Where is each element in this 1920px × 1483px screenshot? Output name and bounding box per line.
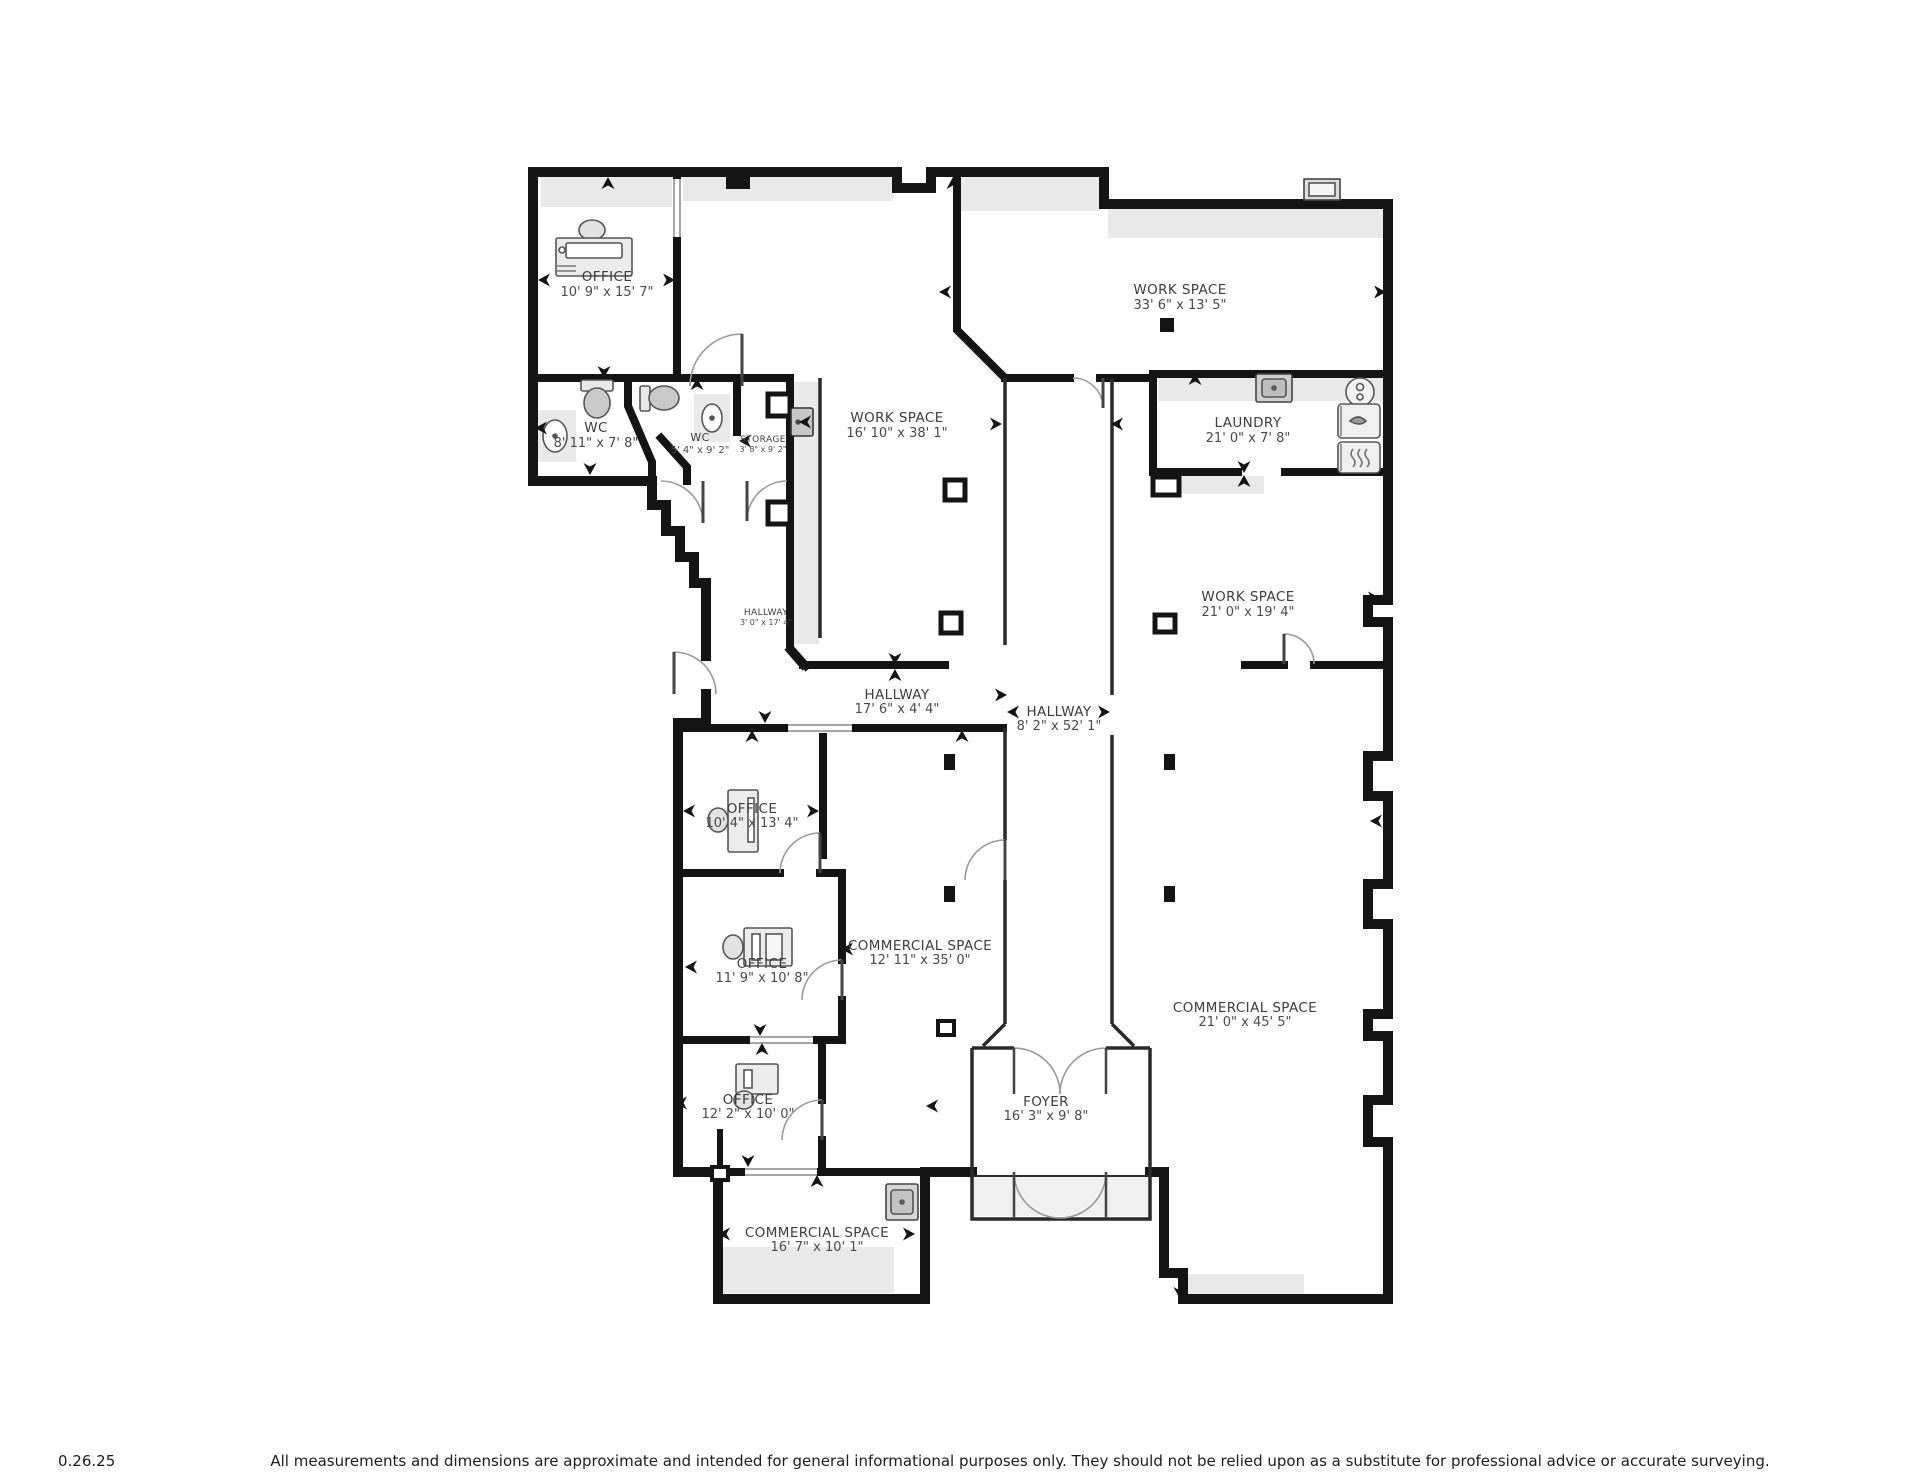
room-dims: 5' 4" x 9' 2" bbox=[671, 445, 730, 456]
column bbox=[1164, 754, 1175, 770]
arrow-icon bbox=[683, 805, 695, 818]
floor-plan-drawing: OFFICE 10' 9" x 15' 7" WORK SPACE 33' 6"… bbox=[0, 0, 1920, 1483]
exterior-wall bbox=[533, 481, 706, 656]
room-label-commercial-mid: COMMERCIAL SPACE 12' 11" x 35' 0" bbox=[848, 938, 992, 968]
room-label-work-space-top: WORK SPACE 33' 6" x 13' 5" bbox=[1133, 282, 1226, 313]
sink-icon bbox=[886, 1184, 918, 1220]
room-name: STORAGE bbox=[740, 435, 786, 445]
room-name: WC bbox=[690, 431, 709, 444]
arrow-icon bbox=[939, 286, 951, 299]
walls-thin bbox=[820, 378, 1150, 1219]
arrow-icon bbox=[1098, 706, 1110, 719]
room-dims: 8' 2" x 52' 1" bbox=[1017, 719, 1102, 734]
room-name: LAUNDRY bbox=[1214, 415, 1281, 431]
column bbox=[1155, 615, 1175, 632]
window bbox=[750, 1034, 813, 1045]
wall bbox=[790, 650, 945, 665]
arrow-icon bbox=[926, 1100, 938, 1113]
room-name: WORK SPACE bbox=[1201, 589, 1294, 605]
room-name: FOYER bbox=[1023, 1094, 1069, 1110]
arrow-icon bbox=[584, 463, 597, 475]
room-dims: 16' 7" x 10' 1" bbox=[771, 1240, 864, 1255]
arrow-icon bbox=[903, 1228, 915, 1241]
arrow-icon bbox=[990, 418, 1002, 431]
wall-pier bbox=[726, 172, 750, 189]
window-strip bbox=[1108, 209, 1384, 238]
room-label-commercial-right: COMMERCIAL SPACE 21' 0" x 45' 5" bbox=[1173, 1000, 1317, 1030]
arrow-icon bbox=[1370, 815, 1382, 828]
room-dims: 21' 0" x 7' 8" bbox=[1206, 431, 1291, 446]
column bbox=[712, 1167, 728, 1180]
arrow-icon bbox=[995, 689, 1007, 702]
window bbox=[672, 179, 682, 237]
arrow-icon bbox=[807, 805, 819, 818]
laundry-sink-icon bbox=[1256, 374, 1292, 402]
room-dims: 33' 6" x 13' 5" bbox=[1134, 298, 1227, 313]
room-dims: 17' 6" x 4' 4" bbox=[855, 702, 940, 717]
door bbox=[1284, 634, 1314, 664]
room-name: WORK SPACE bbox=[1133, 282, 1226, 298]
room-dims: 16' 3" x 9' 8" bbox=[1004, 1109, 1089, 1124]
toilet-icon bbox=[640, 386, 679, 411]
column bbox=[1160, 318, 1174, 332]
window bbox=[745, 1166, 817, 1177]
door bbox=[780, 833, 820, 873]
room-label-hallway-small: HALLWAY 3' 0" x 17' 4" bbox=[740, 608, 792, 627]
window-strip bbox=[961, 177, 1100, 211]
room-name: OFFICE bbox=[727, 801, 778, 817]
column bbox=[941, 613, 961, 633]
storefront-strip bbox=[1186, 1274, 1304, 1295]
room-label-office-2: OFFICE 11' 9" x 10' 8" bbox=[716, 956, 809, 986]
room-dims: 3' 0" x 17' 4" bbox=[740, 618, 792, 627]
arrow-icon bbox=[742, 1155, 755, 1167]
room-labels: OFFICE 10' 9" x 15' 7" WORK SPACE 33' 6"… bbox=[554, 269, 1317, 1255]
room-dims: 10' 4" x 13' 4" bbox=[706, 816, 799, 831]
room-name: HALLWAY bbox=[864, 687, 929, 703]
room-label-hallway-long: HALLWAY 8' 2" x 52' 1" bbox=[1017, 704, 1102, 734]
room-label-storage: STORAGE 3' 8" x 9' 2" bbox=[739, 435, 786, 454]
double-door bbox=[1014, 1048, 1106, 1094]
room-name: OFFICE bbox=[737, 956, 788, 972]
boiler-icon bbox=[1346, 378, 1374, 406]
window bbox=[788, 722, 852, 733]
room-label-work-space-mid: WORK SPACE 16' 10" x 38' 1" bbox=[846, 410, 947, 441]
desk-icon bbox=[556, 220, 632, 276]
room-dims: 8' 11" x 7' 8" bbox=[554, 436, 639, 451]
room-dims: 11' 9" x 10' 8" bbox=[716, 971, 809, 986]
room-dims: 16' 10" x 38' 1" bbox=[846, 426, 947, 441]
room-name: WC bbox=[584, 420, 608, 436]
sink-icon bbox=[702, 404, 722, 432]
window-strip bbox=[1176, 476, 1264, 494]
arrow-icon bbox=[759, 711, 772, 723]
room-label-office-1: OFFICE 10' 4" x 13' 4" bbox=[706, 801, 799, 831]
room-name: WORK SPACE bbox=[850, 410, 943, 426]
page-footer: 0.26.25 All measurements and dimensions … bbox=[0, 1448, 1920, 1478]
arrow-icon bbox=[889, 669, 902, 681]
arrow-icon bbox=[1007, 706, 1019, 719]
arrow-icon bbox=[685, 961, 697, 974]
room-name: HALLWAY bbox=[1026, 704, 1091, 720]
column bbox=[944, 886, 955, 902]
column bbox=[1164, 886, 1175, 902]
room-label-foyer: FOYER 16' 3" x 9' 8" bbox=[1004, 1094, 1089, 1124]
room-dims: 12' 2" x 10' 0" bbox=[702, 1107, 795, 1122]
room-name: OFFICE bbox=[582, 269, 633, 285]
room-name: COMMERCIAL SPACE bbox=[745, 1225, 889, 1241]
column bbox=[768, 502, 790, 524]
room-name: OFFICE bbox=[723, 1092, 774, 1108]
arrow-icon bbox=[538, 274, 550, 287]
room-label-laundry: LAUNDRY 21' 0" x 7' 8" bbox=[1206, 415, 1291, 446]
column bbox=[944, 754, 955, 770]
room-name: COMMERCIAL SPACE bbox=[848, 938, 992, 954]
room-label-office-3: OFFICE 12' 2" x 10' 0" bbox=[702, 1092, 795, 1122]
room-label-work-space-right: WORK SPACE 21' 0" x 19' 4" bbox=[1201, 589, 1294, 620]
washer-icon bbox=[1338, 404, 1380, 438]
column bbox=[1153, 477, 1179, 495]
room-label-hallway-mid: HALLWAY 17' 6" x 4' 4" bbox=[855, 687, 940, 717]
dryer-icon bbox=[1338, 442, 1380, 473]
room-dims: 10' 9" x 15' 7" bbox=[561, 285, 654, 300]
room-name: HALLWAY bbox=[744, 608, 788, 618]
disclaimer-text: All measurements and dimensions are appr… bbox=[0, 1452, 1920, 1470]
vestibule-floor bbox=[972, 1176, 1150, 1216]
room-dims: 12' 11" x 35' 0" bbox=[869, 953, 970, 968]
direction-arrows bbox=[535, 177, 1386, 1299]
door bbox=[965, 840, 1005, 880]
door bbox=[1073, 378, 1103, 408]
column bbox=[945, 480, 965, 500]
room-name: COMMERCIAL SPACE bbox=[1173, 1000, 1317, 1016]
column bbox=[938, 1021, 954, 1035]
column bbox=[768, 394, 790, 416]
room-dims: 21' 0" x 19' 4" bbox=[1202, 605, 1295, 620]
room-dims: 3' 8" x 9' 2" bbox=[739, 445, 786, 454]
toilet-icon bbox=[581, 380, 613, 418]
room-dims: 21' 0" x 45' 5" bbox=[1199, 1015, 1292, 1030]
window-strip bbox=[683, 177, 893, 201]
floor-plan-page: OFFICE 10' 9" x 15' 7" WORK SPACE 33' 6"… bbox=[0, 0, 1920, 1483]
tv-icon bbox=[1304, 179, 1340, 200]
corridor-splay bbox=[983, 1024, 1134, 1046]
